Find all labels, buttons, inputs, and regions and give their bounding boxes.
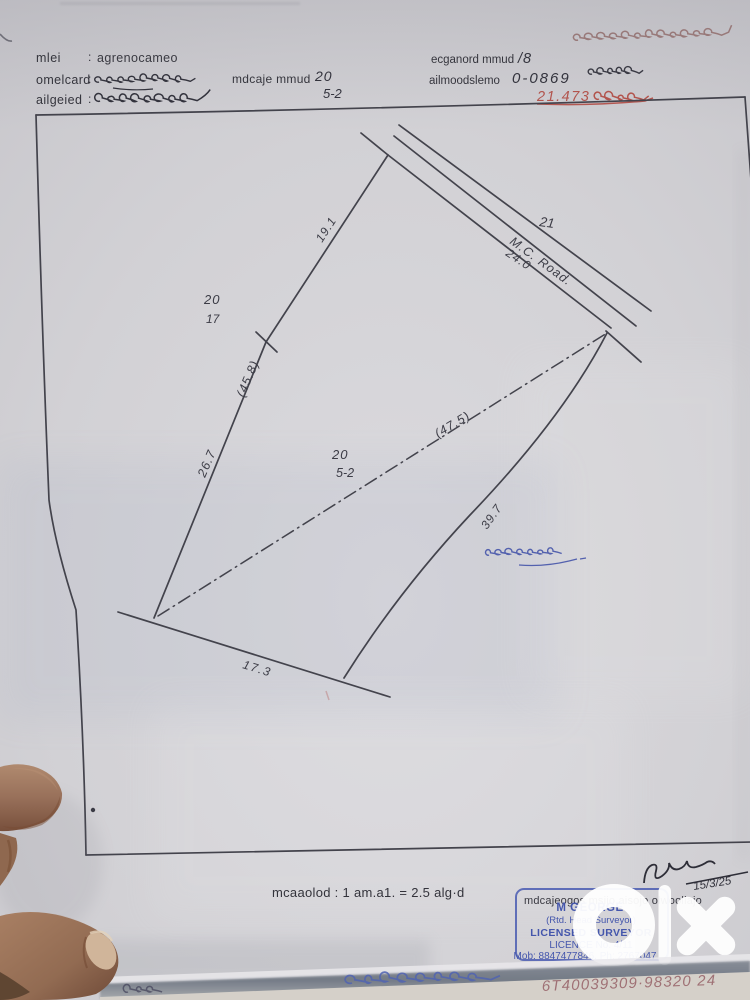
svg-text:/8: /8	[517, 51, 532, 67]
svg-text:ailmoodslemo: ailmoodslemo	[429, 75, 500, 87]
svg-text:0-0869: 0-0869	[512, 70, 571, 87]
svg-text:ecganord mmud: ecganord mmud	[431, 54, 514, 66]
svg-text::: :	[88, 72, 91, 86]
svg-text:mlei: mlei	[36, 51, 61, 65]
svg-text::: :	[88, 92, 91, 106]
svg-text:20: 20	[314, 68, 333, 84]
svg-text:ailgeied: ailgeied	[36, 93, 82, 107]
svg-text:omelcard: omelcard	[36, 73, 91, 87]
svg-text:agrenocameo: agrenocameo	[97, 51, 178, 65]
svg-text::: :	[88, 50, 91, 64]
svg-text:5-2: 5-2	[323, 86, 343, 101]
svg-text:mcaaolod : 1 am.a1. = 2.5 alg·: mcaaolod : 1 am.a1. = 2.5 alg·d	[272, 885, 465, 900]
svg-text:21: 21	[538, 214, 556, 231]
svg-text:20: 20	[331, 447, 348, 462]
svg-text:20: 20	[203, 292, 220, 307]
svg-text:mdcaje mmud: mdcaje mmud	[232, 72, 311, 86]
svg-text:17: 17	[206, 312, 221, 326]
svg-text:5-2: 5-2	[336, 466, 354, 480]
